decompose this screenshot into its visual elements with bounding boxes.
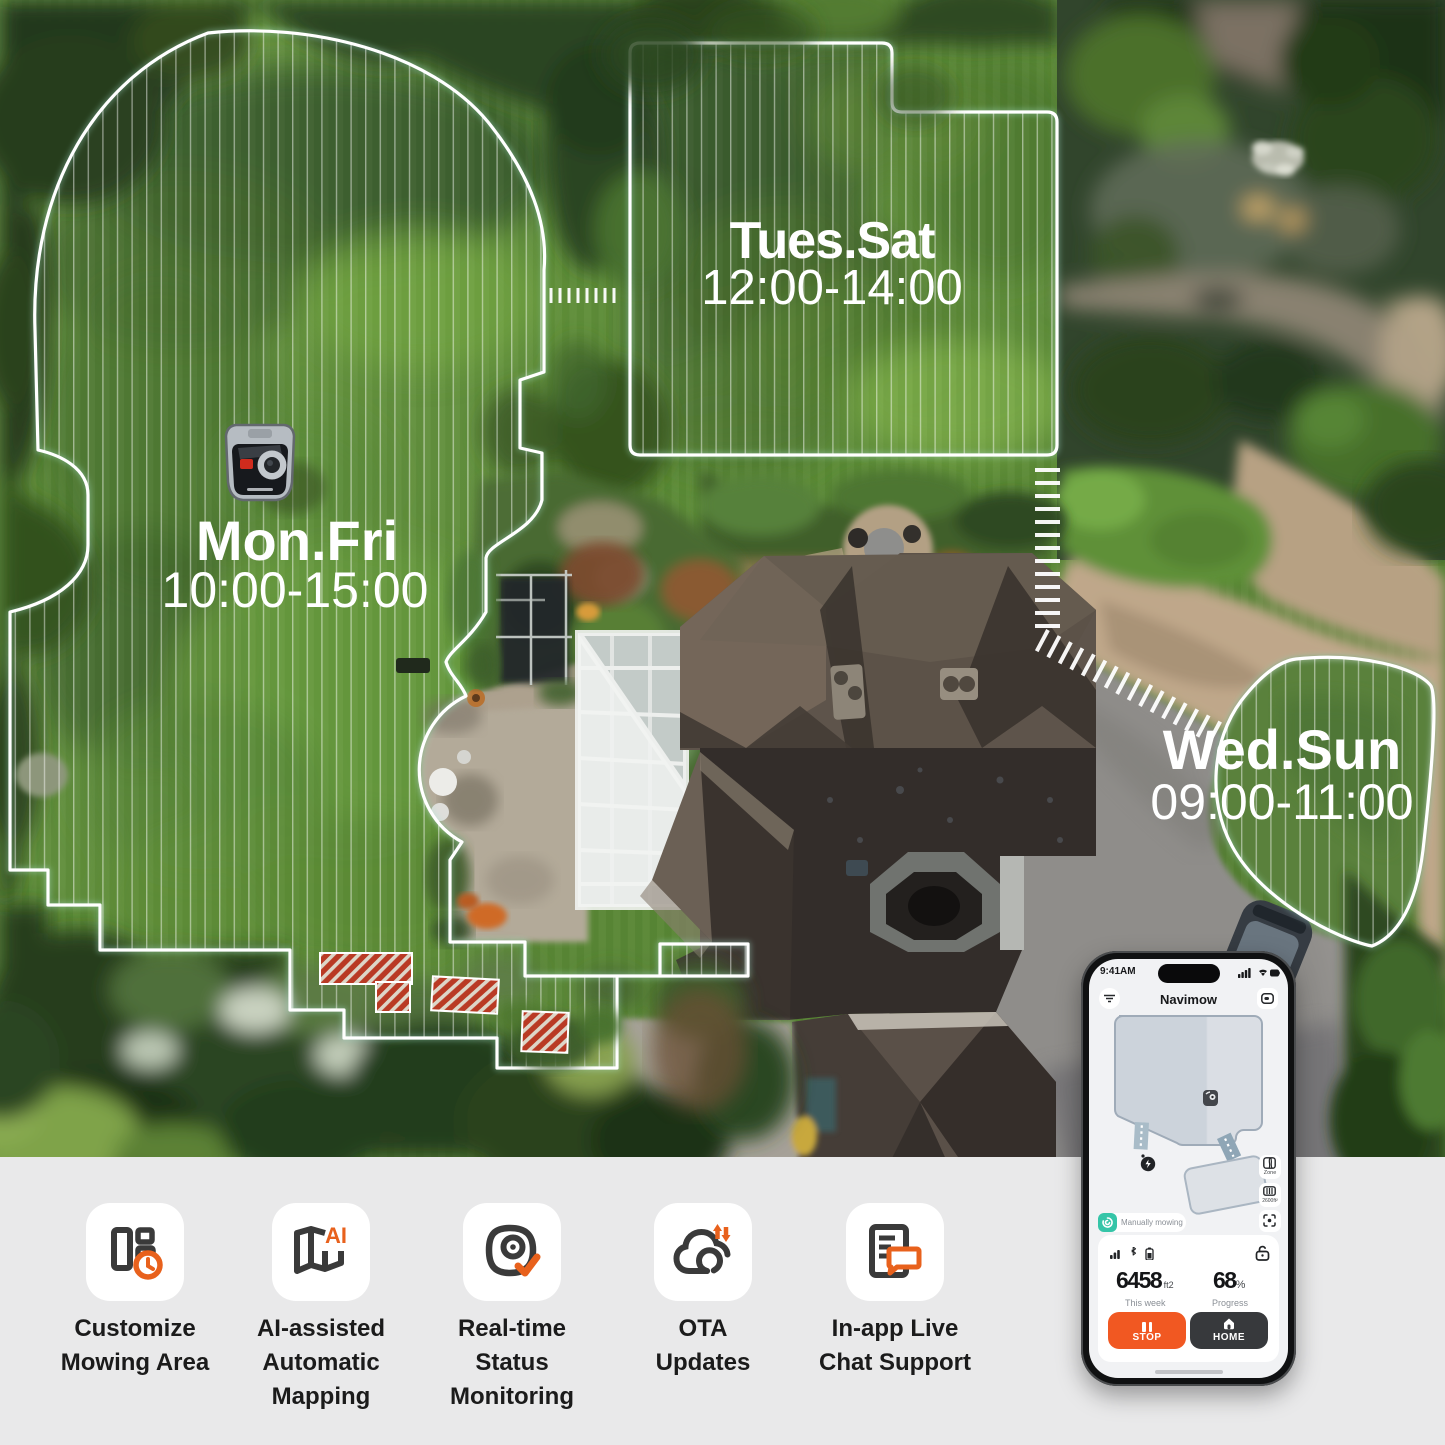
svg-text:Wed.Sun: Wed.Sun — [1163, 718, 1402, 781]
svg-text:09:00-11:00: 09:00-11:00 — [1150, 774, 1413, 830]
svg-text:10:00-15:00: 10:00-15:00 — [162, 562, 429, 618]
svg-text:AI: AI — [325, 1223, 347, 1248]
svg-text:12:00-14:00: 12:00-14:00 — [701, 261, 963, 315]
